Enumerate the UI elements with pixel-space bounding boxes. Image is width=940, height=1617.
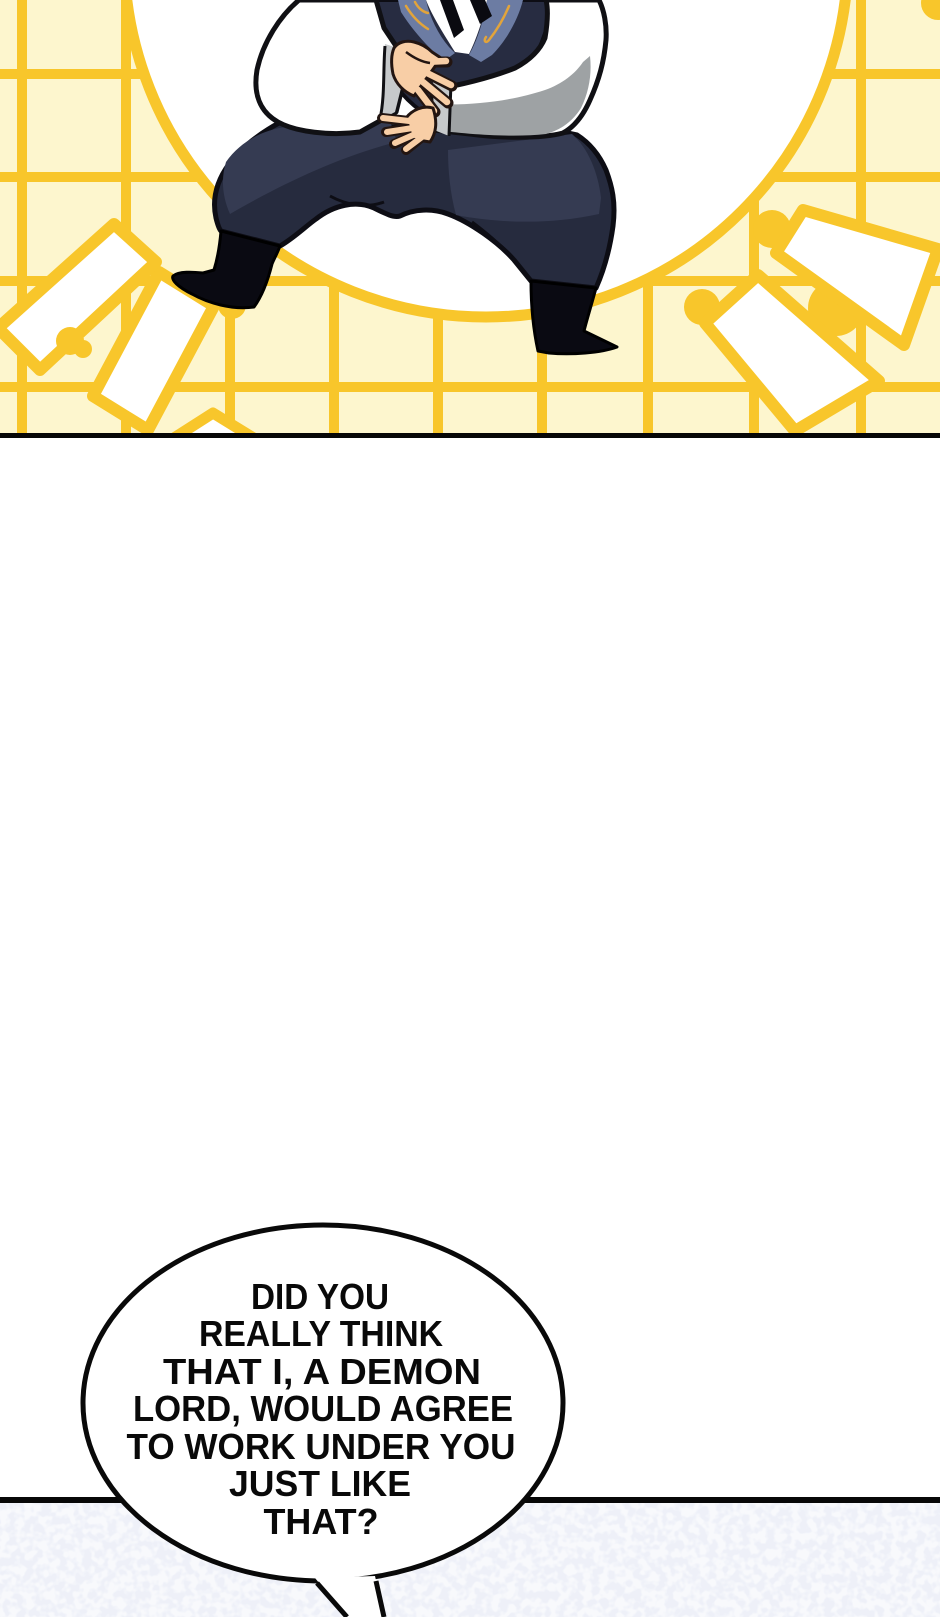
svg-text:THAT?: THAT? bbox=[264, 1501, 379, 1542]
svg-text:TO WORK UNDER YOU: TO WORK UNDER YOU bbox=[127, 1426, 516, 1467]
svg-text:JUST LIKE: JUST LIKE bbox=[229, 1463, 411, 1504]
svg-text:DID YOU: DID YOU bbox=[251, 1276, 389, 1317]
svg-text:THAT I, A DEMON: THAT I, A DEMON bbox=[163, 1351, 481, 1392]
svg-text:REALLY THINK: REALLY THINK bbox=[199, 1313, 443, 1354]
svg-text:LORD, WOULD AGREE: LORD, WOULD AGREE bbox=[133, 1388, 513, 1429]
